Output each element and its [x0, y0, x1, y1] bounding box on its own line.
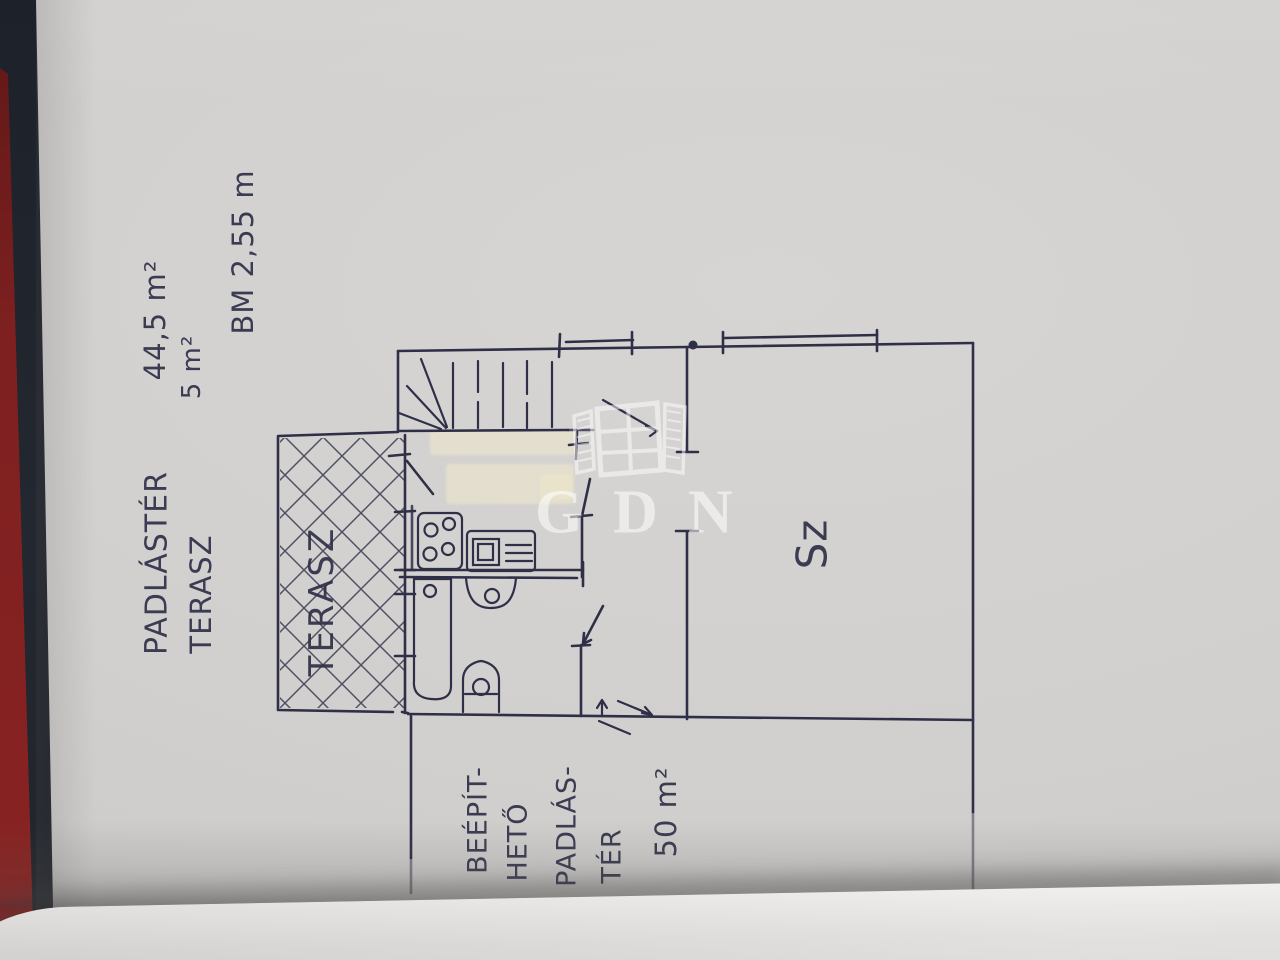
label-buildable-line1: BEÉPÍT- [463, 766, 494, 874]
staircase [399, 359, 552, 429]
label-terrace-area: 5 m² [177, 335, 207, 400]
toilet-icon [463, 661, 499, 712]
label-buildable-line2: HETŐ [503, 802, 534, 881]
floor-plan-photo: GDN PADLÁSTÉR 44,5 m² TERASZ 5 m² BM 2,5… [0, 0, 1280, 960]
watermark-text: GDN [535, 478, 763, 549]
gdn-window-logo-icon [574, 403, 685, 475]
label-buildable-line4: TÉR [597, 828, 628, 883]
label-terrace-name: TERASZ [184, 534, 218, 653]
stove-icon [418, 513, 462, 569]
label-terrace-inner: TERASZ [302, 526, 342, 677]
sink-icon [467, 531, 535, 571]
label-buildable-line3: PADLÁS- [552, 765, 583, 887]
terrace-hatch [280, 438, 404, 708]
label-attic-area: 44,5 m² [138, 260, 172, 381]
label-room-sz: Sz [788, 519, 837, 570]
bathtub-icon [414, 579, 451, 699]
label-attic-name: PADLÁSTÉR [140, 471, 175, 655]
washbasin-icon [466, 578, 516, 608]
label-ceiling-height: BM 2,55 m [226, 169, 260, 334]
label-buildable-area: 50 m² [649, 767, 683, 858]
